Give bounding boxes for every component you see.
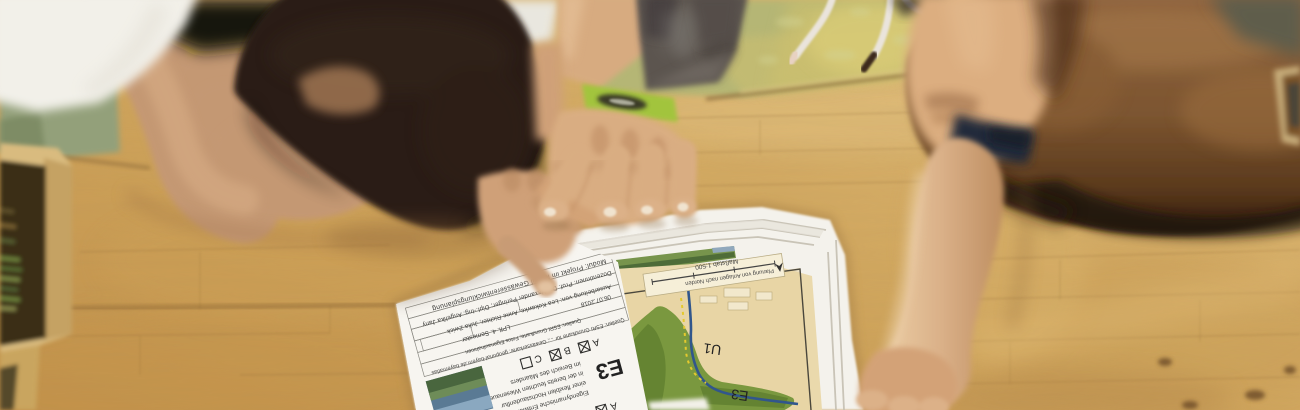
svg-text:U1: U1 bbox=[702, 340, 722, 358]
svg-text:E3: E3 bbox=[730, 386, 749, 404]
